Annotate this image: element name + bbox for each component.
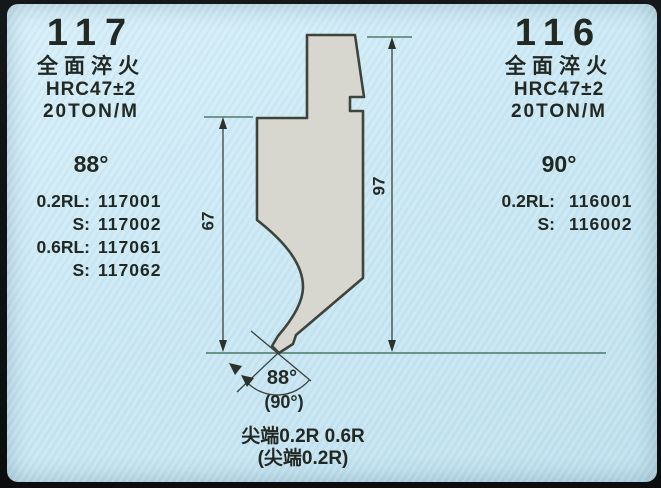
part-number-list: 0.2RL: 116001 S: 116002 — [470, 190, 632, 236]
dim-97-arrow-up-icon — [388, 37, 396, 49]
model-number: 116 — [470, 15, 648, 52]
part-value: 116001 — [569, 190, 632, 213]
product-block-117: 117 全面淬火 HRC47±2 20TON/M 88° 0.2RL: 1170… — [8, 0, 174, 122]
model-number: 117 — [8, 15, 174, 52]
part-value: 117061 — [98, 236, 161, 259]
part-label: S: — [10, 259, 90, 282]
dim-67-arrow-down-icon — [219, 340, 227, 352]
part-label: 0.2RL: — [10, 190, 90, 213]
part-value: 117062 — [98, 259, 161, 282]
hardness-label: HRC47±2 — [8, 79, 174, 101]
hardness-label: HRC47±2 — [470, 79, 648, 101]
heat-treatment-label: 全面淬火 — [470, 55, 648, 79]
tonnage-label: 20TON/M — [8, 101, 174, 122]
working-angle-label: 90° — [470, 151, 648, 178]
dim-67-arrow-up-icon — [219, 117, 227, 129]
tip-note-line1: 尖端0.2R 0.6R — [170, 426, 436, 448]
part-value: 116002 — [569, 213, 632, 236]
part-number-list: 0.2RL: 117001 S: 117002 0.6RL: 117061 S:… — [10, 190, 161, 282]
tip-angle-label: 88° — [267, 367, 297, 389]
punch-profile-shape — [257, 35, 364, 353]
part-label: 0.2RL: — [470, 190, 555, 213]
tip-note-line2: (尖端0.2R) — [170, 448, 436, 470]
tip-angle-alt-label: (90°) — [264, 392, 303, 412]
part-value: 117001 — [98, 190, 161, 213]
part-label: 0.6RL: — [10, 236, 90, 259]
part-label: S: — [10, 213, 90, 236]
tip-angle-arrowhead-icon — [229, 363, 242, 375]
tonnage-label: 20TON/M — [470, 101, 648, 122]
working-angle-label: 88° — [8, 151, 174, 178]
dim-97-arrow-down-icon — [388, 340, 396, 352]
product-block-116: 116 全面淬火 HRC47±2 20TON/M 90° 0.2RL: 1160… — [470, 0, 648, 122]
dim-label-67: 67 — [199, 212, 218, 231]
tip-angle-arrowhead-icon — [241, 375, 254, 387]
part-value: 117002 — [98, 213, 161, 236]
part-label: S: — [470, 213, 555, 236]
catalog-photo-frame: 67 97 88° (90°) 117 全面淬火 HRC47±2 20TON/M… — [0, 0, 661, 488]
heat-treatment-label: 全面淬火 — [8, 55, 174, 79]
dim-label-97: 97 — [370, 177, 389, 196]
tip-radius-notes: 尖端0.2R 0.6R (尖端0.2R) — [170, 426, 436, 470]
